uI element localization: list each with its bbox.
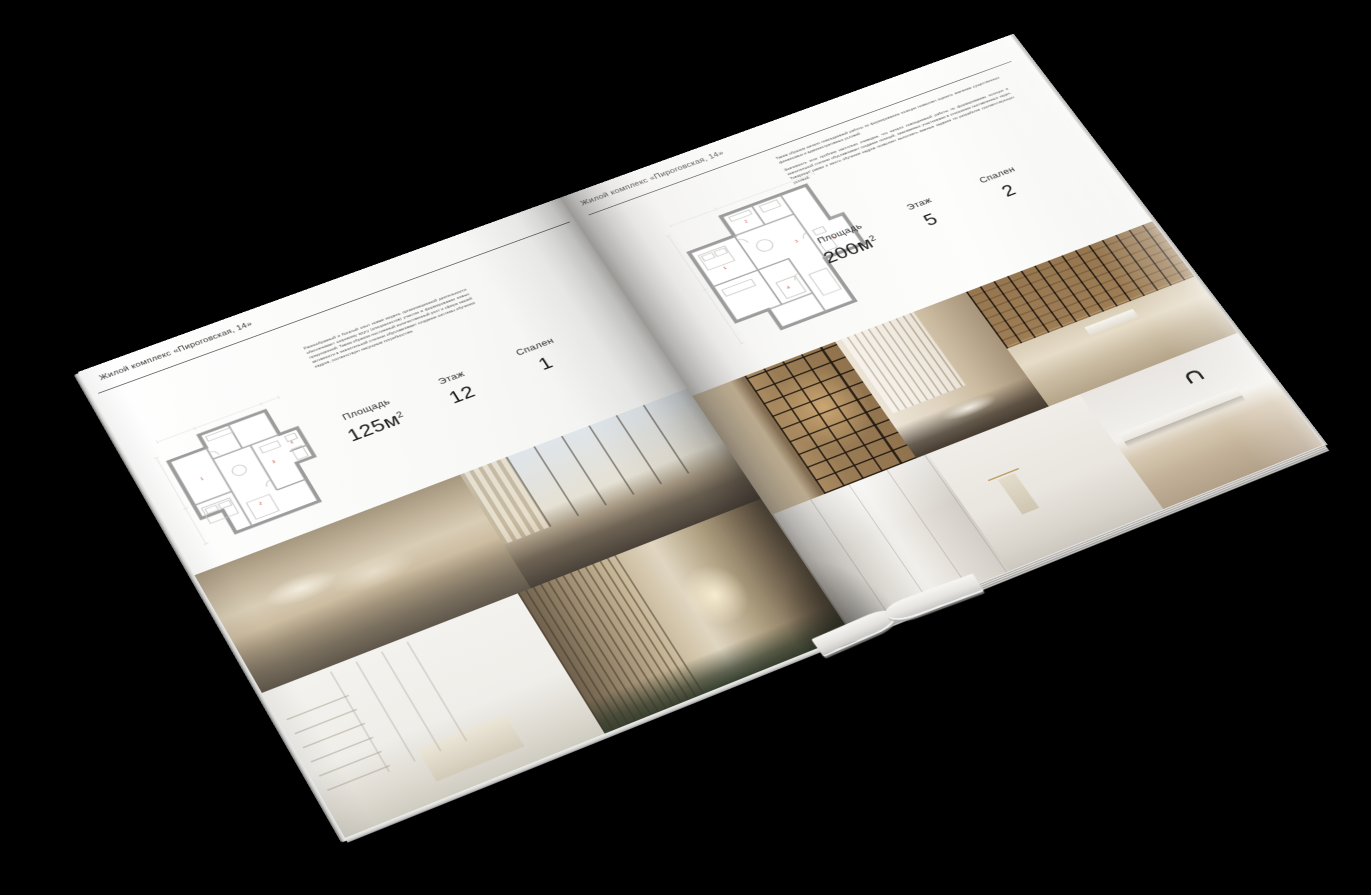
page-title: Жилой комплекс «Пироговская, 14» [98,320,254,382]
stat-bedrooms: Спален 2 [953,156,1056,214]
faucet-icon [1183,369,1204,384]
description-paragraph: Разнообразный и богатый опыт новая модел… [303,288,480,370]
magazine-spread: Жилой комплекс «Пироговская, 14» [78,35,1323,838]
page-title: Жилой комплекс «Пироговская, 14» [579,149,725,207]
scene: Жилой комплекс «Пироговская, 14» [0,0,1371,895]
stat-bedrooms: Спален 1 [488,327,595,389]
